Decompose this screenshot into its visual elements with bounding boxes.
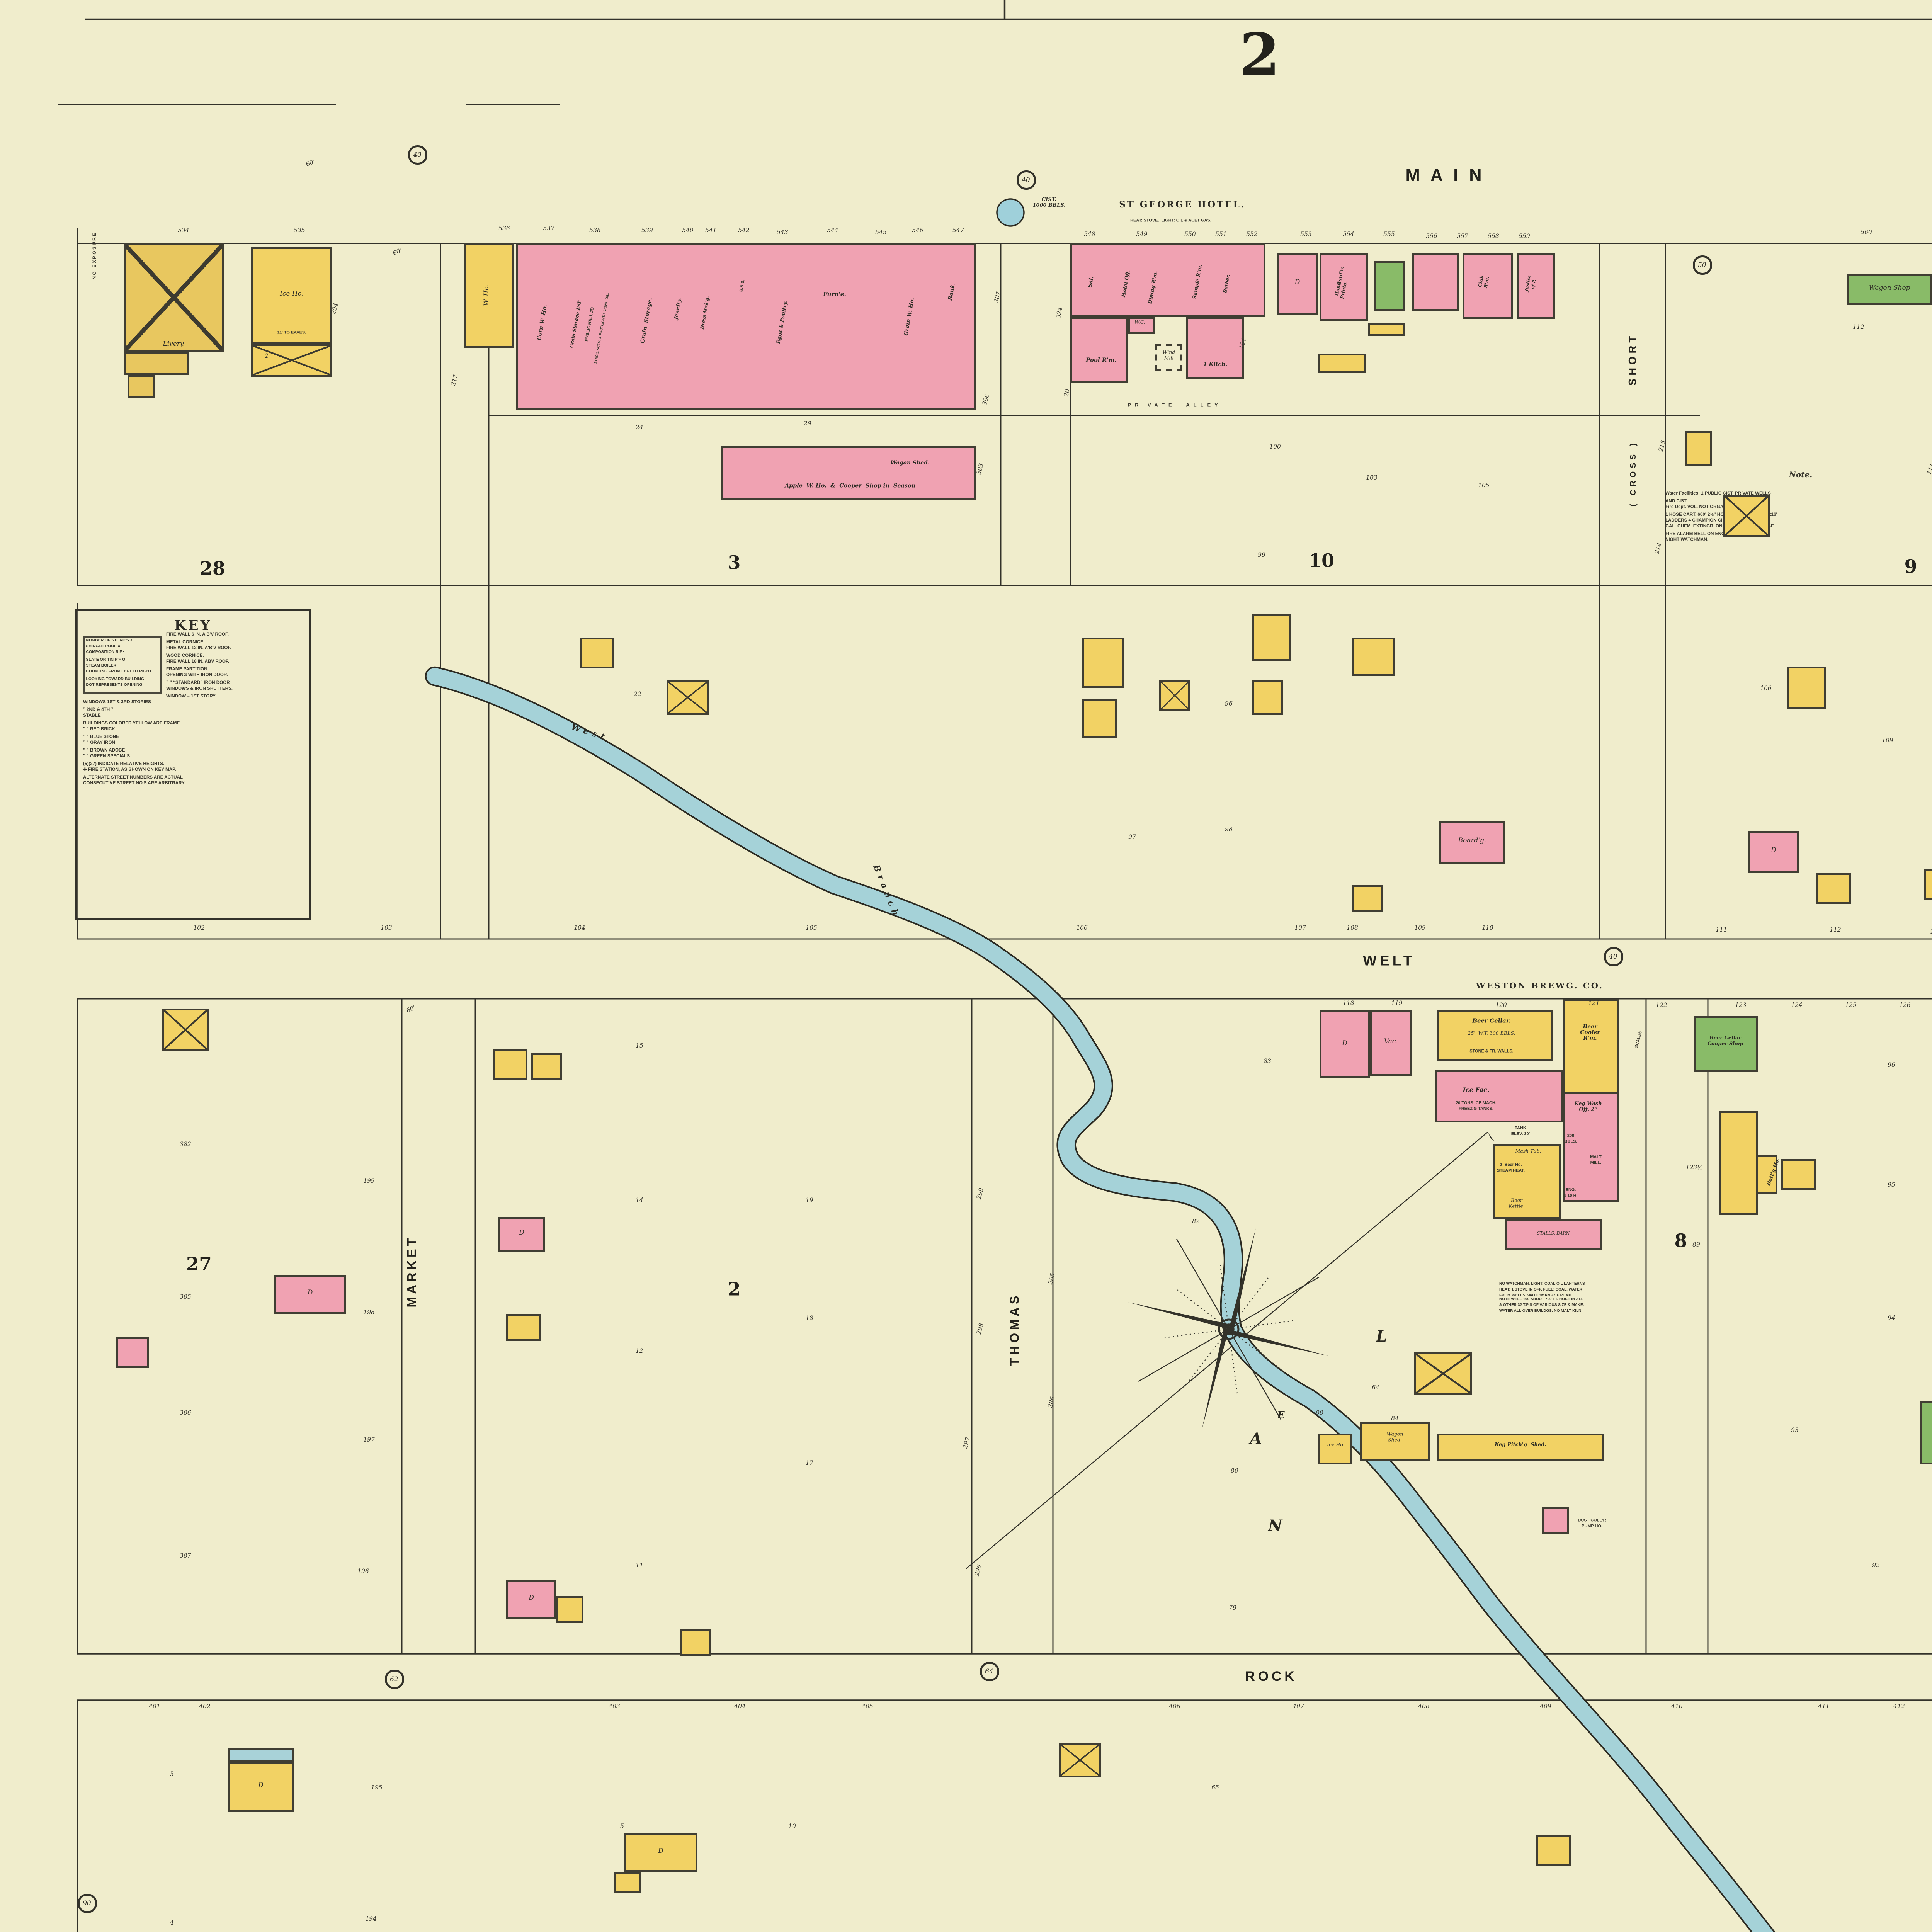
map-label: 123½ bbox=[1686, 1165, 1703, 1172]
map-label: 559 bbox=[1519, 234, 1530, 241]
brewery-note: NO WATCHMAN. LIGHT: COAL OIL LANTERNSHEA… bbox=[1499, 1271, 1683, 1327]
compass-needle bbox=[1128, 1302, 1230, 1329]
building bbox=[1318, 354, 1366, 373]
block-number-10: 10 bbox=[1309, 552, 1334, 573]
map-label: 96 bbox=[1225, 702, 1233, 709]
building-label: D bbox=[519, 1231, 524, 1238]
map-label: 93 bbox=[1791, 1428, 1799, 1435]
building-vac: Vac. bbox=[1370, 1010, 1412, 1076]
map-label: 112 bbox=[1830, 928, 1841, 935]
block-number-2: 2 bbox=[728, 1280, 740, 1301]
map-label: N bbox=[1268, 1517, 1282, 1535]
building-d: D bbox=[228, 1762, 294, 1812]
map-label: 2 Beer Ho. STEAM HEAT. bbox=[1497, 1164, 1525, 1173]
map-label: Ice Ho bbox=[1327, 1444, 1343, 1450]
building-label: D bbox=[529, 1596, 534, 1603]
building-label: STALLS. BARN bbox=[1537, 1232, 1570, 1237]
text-line: ” ” GREEN SPECIALS bbox=[83, 756, 303, 763]
map-label: 403 bbox=[609, 1704, 620, 1711]
building-label: Board'g. bbox=[1458, 839, 1486, 846]
building-label: D bbox=[308, 1291, 313, 1298]
map-label: 536 bbox=[498, 226, 510, 233]
building bbox=[1070, 317, 1128, 383]
map-label: 194 bbox=[365, 1917, 377, 1924]
map-label: 554 bbox=[1343, 232, 1354, 239]
map-label: 119 bbox=[1391, 1001, 1403, 1008]
text-line: SLATE OR TIN R'F O bbox=[86, 658, 160, 665]
map-label: 540 bbox=[682, 228, 694, 235]
building bbox=[556, 1596, 583, 1623]
map-label: Mash Tub. bbox=[1515, 1151, 1541, 1156]
map-label: 96 bbox=[1888, 1063, 1895, 1070]
building-livery: Livery. bbox=[124, 243, 224, 352]
map-label: Beer Cellar Cooper Shop bbox=[1708, 1037, 1743, 1049]
map-label: 409 bbox=[1540, 1704, 1551, 1711]
building-label: W. Ho. bbox=[485, 285, 492, 306]
map-label: 545 bbox=[875, 230, 887, 237]
map-label: 122 bbox=[1656, 1003, 1667, 1010]
map-label: 195 bbox=[371, 1786, 383, 1793]
map-label: 198 bbox=[363, 1310, 375, 1317]
map-label: 22 bbox=[634, 692, 641, 699]
street-name-welt: WELT bbox=[1363, 954, 1415, 970]
map-label: 411 bbox=[1818, 1704, 1830, 1711]
building bbox=[1563, 999, 1619, 1095]
building bbox=[531, 1053, 562, 1080]
landmark-label: ST GEORGE HOTEL. bbox=[1119, 202, 1246, 212]
text-line: Water Facilities: 1 PUBLIC CIST. PRIVATE… bbox=[1665, 493, 1932, 500]
text-line: COMPOSITION R'F • bbox=[86, 651, 160, 658]
building bbox=[1352, 638, 1395, 676]
building bbox=[1536, 1835, 1571, 1866]
text-line: FIRE ALARM BELL ON ENG. HO. LIGHTS: OIL. bbox=[1665, 533, 1932, 539]
text-line: Fire Dept. VOL. NOT ORGANIZED. 1 HAND EN… bbox=[1665, 507, 1932, 513]
building-d: D bbox=[1748, 831, 1799, 873]
text-line: & OTHER 32 T.P'S OF VARIOUS SIZE & MAKE. bbox=[1499, 1305, 1683, 1310]
text-line: 1 HOSE CART. 600' 2½" HOSE. 1 H.& L. TRU… bbox=[1665, 513, 1932, 520]
building bbox=[1723, 495, 1770, 537]
text-line: ” 2ND & 4TH ” bbox=[83, 708, 303, 715]
map-label: 387 bbox=[180, 1554, 191, 1561]
district-number: 2 bbox=[1240, 25, 1280, 92]
map-label: 98 bbox=[1225, 827, 1233, 834]
map-label: 14 bbox=[636, 1198, 643, 1205]
text-line: NO WATCHMAN. LIGHT: COAL OIL LANTERNS bbox=[1499, 1282, 1683, 1288]
map-label: 88 bbox=[1316, 1411, 1323, 1418]
map-label: 83 bbox=[1264, 1059, 1271, 1066]
building bbox=[493, 1049, 527, 1080]
map-label: 111 bbox=[1716, 928, 1727, 935]
map-label: 541 bbox=[705, 228, 717, 235]
map-label: 112 bbox=[1853, 325, 1864, 332]
compass-needle bbox=[1202, 1328, 1229, 1430]
text-line: ✚ FIRE STATION, AS SHOWN ON KEY MAP. bbox=[83, 770, 303, 777]
note-lines: NO WATCHMAN. LIGHT: COAL OIL LANTERNSHEA… bbox=[1499, 1282, 1683, 1316]
building-w-ho: W. Ho. bbox=[464, 243, 514, 348]
map-label: 401 bbox=[149, 1704, 160, 1711]
map-label: 405 bbox=[862, 1704, 873, 1711]
map-label: 538 bbox=[589, 228, 601, 235]
map-label: Keg Pitch'g Shed. bbox=[1495, 1444, 1546, 1450]
map-label: 543 bbox=[777, 230, 788, 237]
street-width-badge: 64 bbox=[980, 1662, 998, 1680]
map-label: 17 bbox=[806, 1461, 813, 1468]
map-label: 105 bbox=[1478, 483, 1490, 490]
map-label: Furn'e. bbox=[823, 292, 846, 299]
cistern bbox=[997, 199, 1024, 226]
map-label: 555 bbox=[1383, 232, 1395, 239]
map-label: Pool R'm. bbox=[1086, 358, 1117, 364]
text-line: WATER ALL OVER BUILDGS. NO MALT KILN. bbox=[1499, 1310, 1683, 1316]
map-label: 404 bbox=[734, 1704, 746, 1711]
building-label: Ice Ho. bbox=[280, 292, 304, 299]
street-width-badge: 50 bbox=[1693, 255, 1711, 274]
map-label: 29 bbox=[804, 422, 811, 429]
map-label: 99 bbox=[1258, 553, 1265, 560]
building bbox=[1816, 873, 1851, 904]
building bbox=[721, 446, 976, 500]
street-name-short: SHORT bbox=[1628, 333, 1641, 386]
map-label: 82 bbox=[1192, 1219, 1200, 1226]
map-label: 1 Kitch. bbox=[1203, 362, 1227, 368]
landmark-label: PRIVATE ALLEY bbox=[1128, 405, 1222, 411]
map-label: 24 bbox=[636, 425, 643, 432]
block-number-8: 8 bbox=[1674, 1232, 1687, 1253]
landmark-label: HEAT: STOVE. LIGHT: OIL & ACET GAS. bbox=[1130, 220, 1211, 225]
map-label: MALT MILL. bbox=[1590, 1156, 1602, 1166]
map-label: 382 bbox=[180, 1142, 191, 1149]
street-width-badge: 90 bbox=[78, 1894, 96, 1912]
building-label: Vac. bbox=[1384, 1040, 1398, 1047]
map-label: 539 bbox=[641, 228, 653, 235]
building bbox=[124, 352, 189, 375]
building-label: D bbox=[1771, 849, 1776, 855]
map-label: 548 bbox=[1084, 232, 1095, 239]
map-label: 544 bbox=[827, 228, 838, 235]
map-label: 109 bbox=[1882, 738, 1893, 745]
building bbox=[614, 1872, 641, 1893]
building bbox=[667, 680, 709, 715]
map-label: 385 bbox=[180, 1295, 191, 1302]
map-label: STONE & FR. WALLS. bbox=[1469, 1051, 1513, 1056]
map-label: 121 bbox=[1588, 1001, 1600, 1008]
building bbox=[251, 344, 332, 377]
map-label: 402 bbox=[199, 1704, 211, 1711]
text-line: (5)(27) INDICATE RELATIVE HEIGHTS. bbox=[83, 763, 303, 770]
building bbox=[1070, 243, 1265, 317]
map-label: Club R'm. bbox=[1480, 275, 1492, 289]
map-label: 125 bbox=[1845, 1003, 1857, 1010]
map-label: 407 bbox=[1293, 1704, 1304, 1711]
building bbox=[1924, 869, 1932, 900]
map-label: 412 bbox=[1893, 1704, 1905, 1711]
building-label: D bbox=[1342, 1041, 1347, 1048]
map-label: 19 bbox=[806, 1198, 813, 1205]
building bbox=[1920, 1401, 1932, 1464]
map-label: 5 bbox=[620, 1824, 624, 1831]
map-label: 546 bbox=[912, 228, 923, 235]
map-canvas: 2 1 3967 2 Sheets. 27920 Weston 1900 s. … bbox=[0, 0, 1932, 1932]
building bbox=[1787, 667, 1826, 709]
map-label: 89 bbox=[1692, 1243, 1700, 1250]
building-label: Wagon Shop bbox=[1869, 286, 1910, 293]
building-label: D bbox=[658, 1849, 663, 1856]
map-label: L bbox=[1376, 1328, 1387, 1346]
building bbox=[128, 375, 155, 398]
building bbox=[1685, 431, 1712, 466]
map-label: 106 bbox=[1760, 686, 1772, 693]
water-fire-note: Note. Water Facilities: 1 PUBLIC CIST. P… bbox=[1665, 456, 1932, 559]
building bbox=[1781, 1159, 1816, 1190]
note-lines: Water Facilities: 1 PUBLIC CIST. PRIVATE… bbox=[1665, 493, 1932, 546]
text-line: WINDOW – 1ST STORY. bbox=[83, 695, 303, 702]
map-label: Wagon Shed. bbox=[1387, 1434, 1403, 1445]
text-line: NIGHT WATCHMAN. bbox=[1665, 539, 1932, 546]
map-label: 557 bbox=[1457, 234, 1468, 241]
text-line: AND CIST. bbox=[1665, 500, 1932, 507]
text-line: WINDOWS 1ST & 3RD STORIES bbox=[83, 702, 303, 709]
map-label: 18 bbox=[806, 1316, 813, 1323]
street-name-rock: ROCK bbox=[1245, 1671, 1297, 1687]
map-label: 105 bbox=[806, 926, 817, 933]
map-label: 537 bbox=[543, 226, 554, 233]
building bbox=[1435, 1070, 1563, 1122]
map-label: 97 bbox=[1128, 835, 1136, 842]
building bbox=[116, 1337, 149, 1368]
text-line: ” ” BLUE STONE bbox=[83, 736, 303, 743]
map-label: 547 bbox=[952, 228, 964, 235]
map-label: 106 bbox=[1076, 926, 1088, 933]
building bbox=[1414, 1352, 1472, 1395]
building-board-g: Board'g. bbox=[1439, 821, 1505, 864]
street-width-badge: 40 bbox=[408, 145, 427, 164]
block-number-9: 9 bbox=[1904, 558, 1917, 579]
sanborn-map-sheet: 2 1 3967 2 Sheets. 27920 Weston 1900 s. … bbox=[0, 0, 1932, 1932]
map-label: 410 bbox=[1671, 1704, 1683, 1711]
map-label: 386 bbox=[180, 1411, 191, 1418]
key-footer: (5)(27) INDICATE RELATIVE HEIGHTS.✚ FIRE… bbox=[83, 763, 303, 790]
building-d: D bbox=[498, 1217, 545, 1252]
map-label: Beer Cooler R'm. bbox=[1580, 1024, 1600, 1043]
map-label: 79 bbox=[1229, 1606, 1236, 1613]
building bbox=[1352, 885, 1383, 912]
building bbox=[228, 1748, 294, 1762]
note-title: Note. bbox=[1665, 469, 1932, 480]
map-label: 552 bbox=[1246, 232, 1258, 239]
map-label: 94 bbox=[1888, 1316, 1895, 1323]
building bbox=[1082, 638, 1124, 688]
map-key: KEY NUMBER OF STORIES 3SHINGLE ROOF XCOM… bbox=[75, 609, 311, 920]
key-title: KEY bbox=[83, 616, 303, 634]
map-label: 110 bbox=[1482, 926, 1493, 933]
map-label: 535 bbox=[294, 228, 305, 235]
street-width-badge: 62 bbox=[385, 1670, 403, 1688]
building bbox=[580, 638, 614, 668]
building bbox=[506, 1314, 541, 1341]
map-label: 20 TONS ICE MACH. FREEZ'G TANKS. bbox=[1456, 1102, 1497, 1112]
building bbox=[1542, 1507, 1569, 1534]
building bbox=[1374, 261, 1405, 311]
map-label: 196 bbox=[357, 1569, 369, 1576]
map-label: 558 bbox=[1488, 234, 1499, 241]
map-label: 406 bbox=[1169, 1704, 1180, 1711]
building-label: Livery. bbox=[163, 343, 185, 350]
map-label: 2 bbox=[265, 354, 269, 361]
map-label: 84 bbox=[1391, 1417, 1399, 1423]
text-line: SHINGLE ROOF X bbox=[86, 645, 160, 651]
street-name-market: MARKET bbox=[406, 1235, 420, 1307]
building bbox=[1368, 323, 1405, 336]
building-d: D bbox=[1277, 253, 1318, 315]
map-label: Beer Cellar. bbox=[1472, 1019, 1510, 1025]
map-label: E bbox=[1277, 1413, 1284, 1424]
map-label: 92 bbox=[1872, 1563, 1880, 1570]
map-label: 15 bbox=[636, 1044, 643, 1051]
map-label: 80 bbox=[1231, 1469, 1238, 1476]
text-line: ” ” GRAY IRON bbox=[83, 742, 303, 749]
map-label: 11 bbox=[636, 1563, 643, 1570]
key-symbol-table: NUMBER OF STORIES 3SHINGLE ROOF XCOMPOSI… bbox=[83, 636, 162, 693]
building bbox=[680, 1629, 711, 1656]
map-label: 4 bbox=[170, 1921, 174, 1928]
building-d: D bbox=[274, 1275, 346, 1314]
map-label: 549 bbox=[1136, 232, 1148, 239]
map-label: 111 bbox=[1927, 463, 1932, 476]
map-label: 102 bbox=[193, 926, 205, 933]
building bbox=[1059, 1743, 1101, 1777]
map-label: 113 bbox=[1930, 930, 1932, 937]
street-name-thomas: THOMAS bbox=[1009, 1293, 1023, 1366]
street-width-badge: 40 bbox=[1017, 170, 1035, 189]
building bbox=[1082, 699, 1117, 738]
map-label: 123 bbox=[1735, 1003, 1747, 1010]
map-label: 103 bbox=[1366, 476, 1378, 483]
building bbox=[1252, 614, 1291, 661]
map-label: Apple W. Ho. & Cooper Shop in Season bbox=[785, 484, 915, 490]
street-width-badge: 40 bbox=[1604, 947, 1622, 966]
building bbox=[1252, 680, 1283, 715]
map-label: 11' TO EAVES. bbox=[277, 332, 306, 337]
map-label: 108 bbox=[1347, 926, 1358, 933]
building-ice-ho: Ice Ho. bbox=[251, 247, 332, 344]
map-label: 197 bbox=[363, 1438, 375, 1445]
building bbox=[162, 1009, 209, 1051]
map-label: W.C. bbox=[1134, 322, 1145, 327]
building-label: D bbox=[258, 1784, 264, 1791]
map-label: 65 bbox=[1211, 1786, 1219, 1793]
map-label: DUST COLL'R PUMP HO. bbox=[1578, 1519, 1606, 1529]
building-label: D bbox=[1295, 281, 1300, 287]
building-wagon-shop: Wagon Shop bbox=[1847, 274, 1932, 305]
text-line: BUILDINGS COLORED YELLOW ARE FRAME bbox=[83, 722, 303, 729]
map-label: Ice Fac. bbox=[1463, 1088, 1490, 1095]
map-label: 64 bbox=[1372, 1386, 1379, 1393]
block-number-27: 27 bbox=[186, 1255, 212, 1276]
map-label: 10 bbox=[788, 1824, 796, 1831]
map-label: 551 bbox=[1215, 232, 1227, 239]
map-label: TANK ELEV. 30' bbox=[1511, 1127, 1530, 1137]
map-label: 553 bbox=[1300, 232, 1312, 239]
building bbox=[1412, 253, 1459, 311]
map-label: 103 bbox=[381, 926, 392, 933]
map-label: 104 bbox=[574, 926, 585, 933]
map-label: 542 bbox=[738, 228, 750, 235]
map-label: 95 bbox=[1888, 1183, 1895, 1190]
compass-hub bbox=[1226, 1327, 1231, 1331]
map-label: 200 BBLS. bbox=[1565, 1135, 1577, 1145]
map-label: 120 bbox=[1495, 1003, 1507, 1010]
text-line: STABLE bbox=[83, 715, 303, 722]
landmark-label: CIST. 1000 BBLS. bbox=[1032, 199, 1065, 211]
map-label: 550 bbox=[1184, 232, 1196, 239]
block-number-28: 28 bbox=[200, 560, 225, 581]
block-number-3: 3 bbox=[728, 554, 740, 575]
map-label: 118 bbox=[1343, 1001, 1354, 1008]
map-label: 25' W.T. 300 BBLS. bbox=[1468, 1033, 1515, 1038]
map-label: 107 bbox=[1294, 926, 1306, 933]
street-name-cross: ( CROSS ) bbox=[1630, 440, 1639, 507]
map-label: 109 bbox=[1414, 926, 1426, 933]
text-line: ” ” RED BRICK bbox=[83, 729, 303, 736]
building bbox=[1186, 317, 1244, 379]
text-line: HEAT: 1 STOVE IN OFF. FUEL: COAL. WATER bbox=[1499, 1288, 1683, 1293]
map-label: ENG. 1 10 H. bbox=[1564, 1189, 1577, 1199]
map-label: A bbox=[1250, 1430, 1262, 1448]
building-stalls-barn: STALLS. BARN bbox=[1505, 1219, 1602, 1250]
text-line: GAL. CHEM. EXTINGR. ON WHEELS. 150' 1" H… bbox=[1665, 526, 1932, 533]
text-line: ” ” BROWN ADOBE bbox=[83, 749, 303, 756]
map-label: Beer Kettle. bbox=[1509, 1200, 1525, 1211]
building bbox=[1159, 680, 1190, 711]
text-line: NUMBER OF STORIES 3 bbox=[86, 639, 160, 645]
map-label: 12 bbox=[636, 1349, 643, 1356]
map-label: 560 bbox=[1861, 230, 1872, 237]
arrowhead bbox=[1488, 1132, 1495, 1141]
text-line: STEAM BOILER bbox=[86, 664, 160, 671]
map-label: 5 bbox=[170, 1772, 174, 1779]
map-label: Wind Mill bbox=[1163, 352, 1175, 363]
building-d: D bbox=[506, 1580, 556, 1619]
map-label: Wagon Shed. bbox=[890, 461, 930, 467]
map-label: 534 bbox=[178, 228, 189, 235]
key-color-legend: BUILDINGS COLORED YELLOW ARE FRAME” ” RE… bbox=[83, 722, 303, 763]
map-label: N O E X P O S U R E . bbox=[94, 230, 99, 279]
building-d: D bbox=[1320, 1010, 1370, 1078]
map-label: 556 bbox=[1426, 234, 1437, 241]
landmark-label: WESTON BREWG. CO. bbox=[1476, 983, 1604, 992]
building bbox=[1719, 1111, 1758, 1215]
text-line: CONSECUTIVE STREET NO'S ARE ARBITRARY bbox=[83, 783, 303, 790]
map-label: 124 bbox=[1791, 1003, 1803, 1010]
text-line: COUNTING FROM LEFT TO RIGHT LOOKING TOWA… bbox=[86, 671, 160, 684]
map-label: 126 bbox=[1899, 1003, 1911, 1010]
building-d: D bbox=[624, 1833, 697, 1872]
map-label: 199 bbox=[363, 1179, 375, 1186]
map-label: Keg Wash Off. 2ᴰ bbox=[1574, 1103, 1602, 1115]
map-label: 100 bbox=[1269, 445, 1281, 452]
map-label: 408 bbox=[1418, 1704, 1430, 1711]
street-name-main: M A I N bbox=[1405, 166, 1485, 186]
text-line: DOT REPRESENTS OPENING bbox=[86, 684, 160, 690]
